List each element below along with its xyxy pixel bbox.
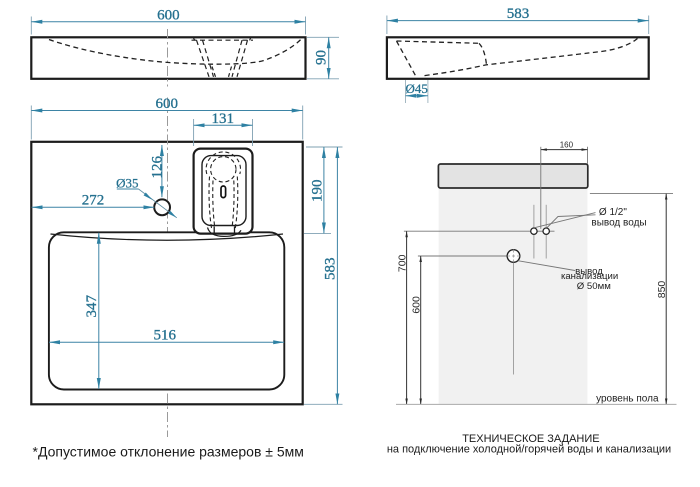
svg-text:583: 583 xyxy=(507,6,530,22)
svg-text:190: 190 xyxy=(309,180,325,203)
svg-text:131: 131 xyxy=(211,111,234,127)
svg-text:*Допустимое отклонение размеро: *Допустимое отклонение размеров ± 5мм xyxy=(33,444,304,460)
svg-text:272: 272 xyxy=(82,193,105,209)
svg-text:126: 126 xyxy=(149,155,165,178)
svg-text:583: 583 xyxy=(322,258,338,281)
svg-text:600: 600 xyxy=(410,296,422,314)
svg-text:347: 347 xyxy=(84,294,100,317)
svg-text:Ø45: Ø45 xyxy=(406,81,428,96)
svg-text:вывод воды: вывод воды xyxy=(591,218,646,229)
svg-text:Ø 1/2": Ø 1/2" xyxy=(599,207,627,218)
svg-text:600: 600 xyxy=(156,96,179,112)
svg-text:516: 516 xyxy=(154,328,177,344)
svg-text:700: 700 xyxy=(397,254,409,272)
svg-text:160: 160 xyxy=(560,141,574,150)
svg-text:уровень пола: уровень пола xyxy=(596,394,659,405)
svg-text:Ø35: Ø35 xyxy=(116,175,138,190)
svg-text:на подключение холодной/горяче: на подключение холодной/горячей воды и к… xyxy=(387,444,671,456)
svg-text:90: 90 xyxy=(313,50,329,65)
svg-text:850: 850 xyxy=(656,281,668,299)
svg-text:Ø 50мм: Ø 50мм xyxy=(577,281,611,292)
svg-text:600: 600 xyxy=(157,7,180,23)
